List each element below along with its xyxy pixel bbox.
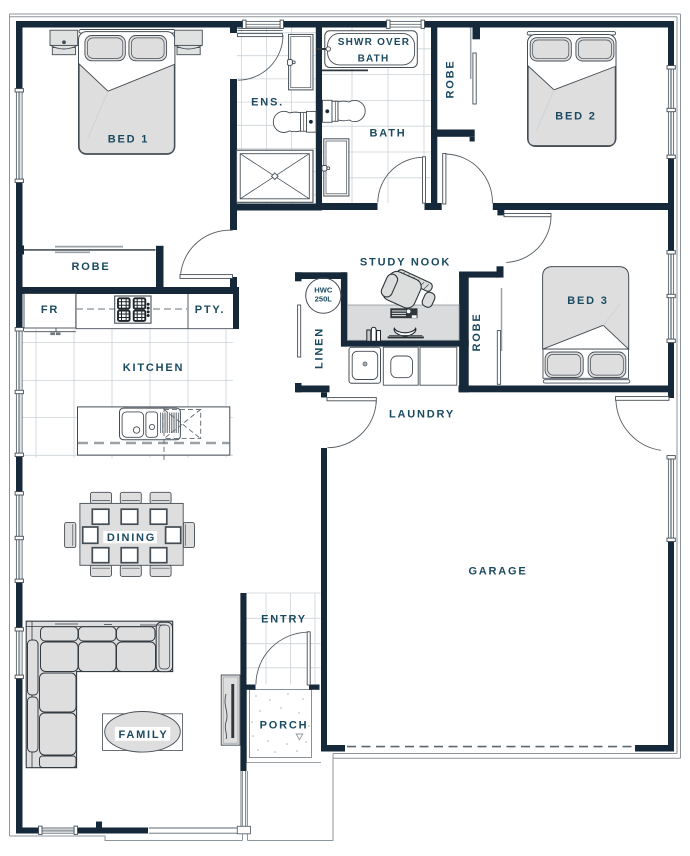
svg-text:ROBE: ROBE bbox=[72, 261, 111, 273]
svg-text:BED 1: BED 1 bbox=[108, 133, 149, 145]
svg-text:DINING: DINING bbox=[107, 532, 156, 544]
svg-text:ENS.: ENS. bbox=[251, 97, 284, 109]
svg-text:BATH: BATH bbox=[370, 127, 407, 139]
svg-text:BED 3: BED 3 bbox=[567, 295, 608, 307]
svg-text:HWC: HWC bbox=[314, 286, 333, 295]
svg-text:BED 2: BED 2 bbox=[555, 111, 596, 123]
svg-text:PORCH: PORCH bbox=[260, 720, 309, 732]
svg-text:FAMILY: FAMILY bbox=[118, 729, 168, 741]
svg-text:STUDY NOOK: STUDY NOOK bbox=[360, 256, 451, 268]
svg-text:LAUNDRY: LAUNDRY bbox=[389, 408, 455, 420]
svg-text:LINEN: LINEN bbox=[314, 327, 326, 369]
svg-text:FR: FR bbox=[41, 304, 59, 316]
svg-text:ROBE: ROBE bbox=[471, 313, 483, 352]
svg-text:ENTRY: ENTRY bbox=[261, 614, 307, 626]
svg-text:SHWR OVER: SHWR OVER bbox=[338, 37, 410, 48]
svg-text:BATH: BATH bbox=[358, 53, 390, 64]
svg-text:ROBE: ROBE bbox=[445, 60, 457, 99]
svg-text:KITCHEN: KITCHEN bbox=[123, 362, 185, 374]
svg-text:PTY.: PTY. bbox=[195, 304, 225, 316]
svg-text:GARAGE: GARAGE bbox=[468, 566, 527, 578]
svg-text:250L: 250L bbox=[315, 295, 333, 304]
